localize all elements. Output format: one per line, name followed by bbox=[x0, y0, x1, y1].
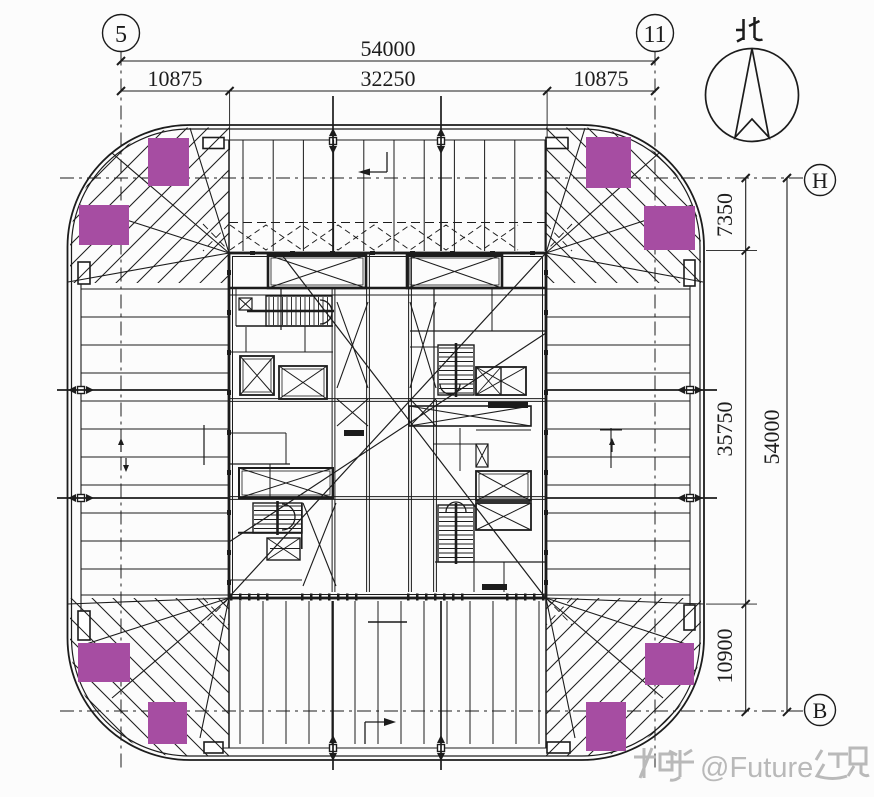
svg-text:54000: 54000 bbox=[759, 410, 784, 465]
svg-text:5: 5 bbox=[115, 22, 127, 48]
svg-text:11: 11 bbox=[643, 22, 666, 48]
svg-text:@Future: @Future bbox=[700, 752, 813, 784]
svg-text:B: B bbox=[813, 698, 828, 723]
svg-text:H: H bbox=[812, 168, 828, 193]
svg-text:10875: 10875 bbox=[574, 66, 629, 91]
svg-text:10875: 10875 bbox=[148, 66, 203, 91]
svg-text:10900: 10900 bbox=[712, 629, 737, 684]
svg-text:54000: 54000 bbox=[361, 36, 416, 61]
svg-text:35750: 35750 bbox=[712, 402, 737, 457]
svg-text:32250: 32250 bbox=[361, 66, 416, 91]
svg-text:7350: 7350 bbox=[712, 193, 737, 237]
